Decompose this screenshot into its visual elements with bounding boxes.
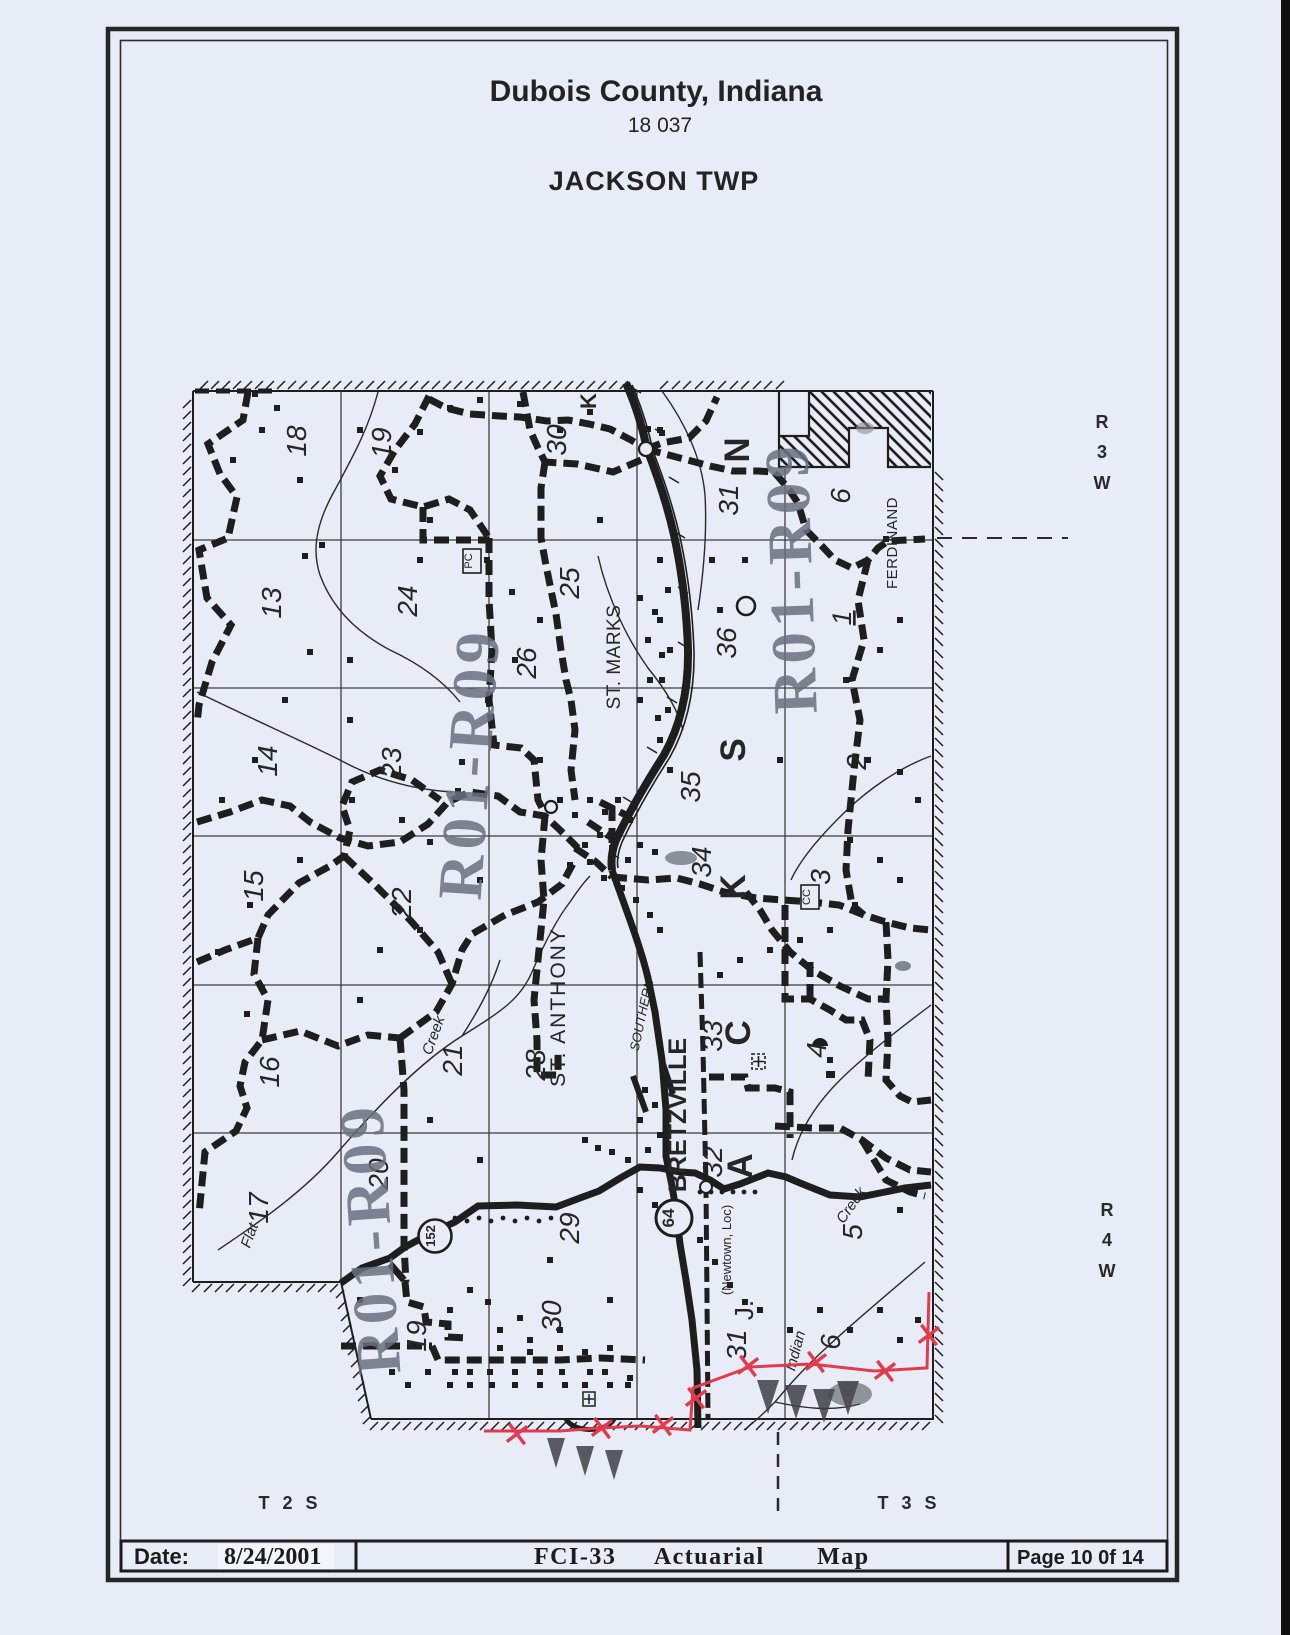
svg-text:1: 1 — [827, 610, 857, 625]
svg-text:14: 14 — [252, 745, 283, 776]
svg-text:16: 16 — [254, 1056, 285, 1088]
svg-text:64: 64 — [659, 1208, 678, 1227]
svg-text:R: R — [1096, 412, 1109, 432]
svg-text:18 037: 18 037 — [628, 114, 692, 137]
svg-text:A: A — [721, 1153, 760, 1178]
svg-text:T 3 S: T 3 S — [877, 1493, 940, 1513]
svg-text:36: 36 — [711, 627, 742, 659]
svg-text:FERDINAND: FERDINAND — [884, 497, 901, 589]
svg-text:31: 31 — [721, 1329, 752, 1360]
svg-text:CC: CC — [801, 889, 813, 905]
svg-text:17: 17 — [243, 1191, 274, 1224]
svg-text:8/24/2001: 8/24/2001 — [224, 1544, 321, 1570]
svg-text:30: 30 — [541, 424, 572, 456]
svg-text:JACKSON TWP: JACKSON TWP — [549, 166, 760, 196]
svg-text:13: 13 — [256, 587, 287, 619]
svg-text:22: 22 — [386, 887, 417, 920]
svg-text:K: K — [714, 874, 753, 899]
svg-text:5: 5 — [837, 1224, 868, 1240]
svg-text:18: 18 — [281, 425, 312, 457]
svg-text:Page 10 0f 14: Page 10 0f 14 — [1017, 1547, 1145, 1569]
svg-text:19: 19 — [366, 427, 397, 458]
svg-text:Date:: Date: — [134, 1544, 189, 1569]
svg-text:ST. MARKS: ST. MARKS — [604, 605, 625, 710]
svg-text:30: 30 — [536, 1300, 567, 1332]
svg-text:15: 15 — [238, 870, 269, 902]
svg-text:C: C — [719, 1020, 758, 1045]
svg-text:4: 4 — [1102, 1230, 1112, 1250]
svg-text:21: 21 — [437, 1044, 468, 1076]
svg-text:R01-R09: R01-R09 — [751, 440, 830, 715]
svg-text:R: R — [1101, 1200, 1114, 1220]
svg-text:152: 152 — [423, 1225, 438, 1247]
svg-text:4: 4 — [801, 1042, 832, 1058]
svg-text:BRETZVILLE: BRETZVILLE — [664, 1038, 692, 1192]
svg-text:6: 6 — [825, 488, 856, 504]
svg-text:S: S — [714, 738, 753, 761]
svg-text:FCI-33 Actuarial Map: FCI-33 Actuarial Map — [534, 1544, 870, 1570]
svg-text:3: 3 — [805, 869, 836, 885]
svg-text:Dubois County, Indiana: Dubois County, Indiana — [490, 75, 823, 108]
svg-text:2: 2 — [841, 754, 872, 771]
svg-text:K: K — [576, 393, 601, 409]
svg-text:PC: PC — [463, 553, 475, 568]
svg-text:T 2 S: T 2 S — [258, 1493, 321, 1513]
svg-text:(Newtown, Loc): (Newtown, Loc) — [719, 1205, 734, 1295]
svg-text:6: 6 — [815, 1334, 846, 1350]
svg-text:3: 3 — [1097, 442, 1107, 462]
svg-text:W: W — [1099, 1261, 1116, 1281]
svg-text:J.: J. — [729, 1300, 759, 1320]
svg-text:29: 29 — [554, 1212, 585, 1244]
svg-text:24: 24 — [392, 585, 423, 617]
svg-text:31: 31 — [713, 484, 744, 515]
svg-text:W: W — [1094, 473, 1111, 493]
svg-text:ST. ANTHONY: ST. ANTHONY — [547, 927, 570, 1087]
svg-text:26: 26 — [511, 647, 542, 680]
svg-text:35: 35 — [675, 771, 706, 803]
svg-text:23: 23 — [376, 747, 407, 780]
svg-text:25: 25 — [554, 567, 585, 600]
